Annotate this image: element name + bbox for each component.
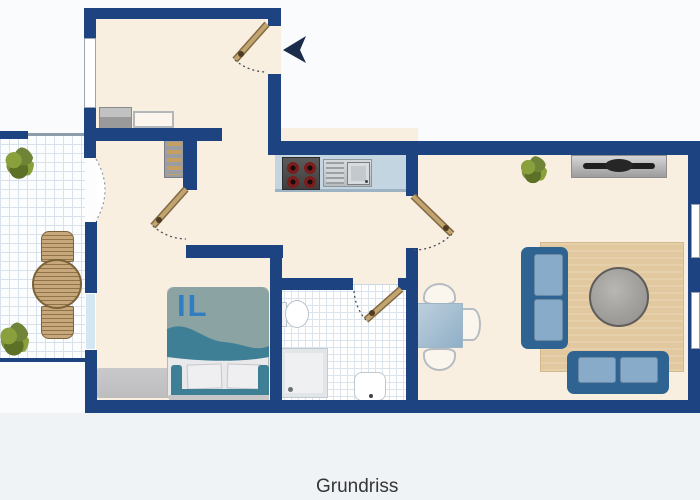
stove-burner — [287, 176, 299, 188]
coffee-table-round — [589, 267, 649, 327]
balcony-bottom-edge — [0, 358, 87, 362]
sofa-cushion — [620, 357, 658, 383]
balcony-chair-south — [41, 306, 74, 339]
hall-dresser — [164, 138, 184, 178]
window-living-north — [691, 204, 700, 258]
bedroom-rug — [97, 368, 170, 398]
window-living-south — [691, 292, 700, 349]
sink-faucet — [365, 180, 368, 183]
wall-segment — [186, 245, 283, 258]
bathroom-sink — [354, 372, 386, 401]
sofa-cushion — [534, 254, 563, 296]
wall-segment — [268, 8, 281, 26]
stove-burner — [287, 162, 299, 174]
bed-pillow — [187, 363, 223, 389]
stove-cooktop — [282, 157, 320, 190]
sink-basin — [347, 162, 370, 185]
tv-stand — [605, 159, 633, 172]
floor-entry-gap — [268, 24, 281, 76]
sofa-two-seater-vertical — [521, 247, 568, 349]
wall-segment — [688, 141, 700, 413]
wall-segment — [84, 8, 281, 19]
shower-tray — [280, 348, 328, 398]
dresser-drawers — [167, 142, 181, 175]
plant-balcony-south — [0, 322, 29, 357]
wall-segment — [270, 278, 353, 290]
wall-segment — [406, 248, 418, 410]
stove-burner — [304, 162, 316, 174]
wall-segment — [183, 128, 197, 190]
dining-table — [417, 303, 463, 348]
window-hall — [84, 38, 96, 108]
sofa-two-seater-horizontal — [567, 351, 669, 394]
sofa-cushion — [534, 299, 563, 341]
hall-bench — [133, 111, 174, 128]
window-bedroom — [85, 293, 96, 350]
floorplan-title: Grundriss — [316, 476, 398, 498]
wall-segment — [406, 150, 418, 196]
wall-segment — [0, 131, 28, 139]
floorplan-canvas: IL Grundriss — [0, 0, 700, 500]
dining-chair-north — [423, 283, 456, 305]
wall-segment — [85, 221, 97, 293]
entrance-arrow-icon — [283, 36, 306, 63]
stove-burner — [304, 176, 316, 188]
wall-segment — [268, 141, 700, 155]
sink-faucet — [369, 394, 373, 398]
plant-living-room — [520, 156, 547, 184]
wall-segment — [270, 252, 282, 410]
wall-segment — [88, 128, 222, 141]
sofa-cushion — [578, 357, 616, 383]
toilet-bowl — [285, 300, 309, 328]
watermark: IL — [177, 288, 209, 324]
hall-wardrobe — [99, 107, 132, 129]
balcony-top-edge — [28, 133, 85, 136]
balcony-chair-north — [41, 231, 74, 262]
plant-balcony-north — [5, 147, 34, 180]
shower-drain — [288, 387, 293, 392]
kitchen-sink-unit — [323, 159, 372, 187]
wall-segment — [85, 400, 700, 413]
balcony-round-table — [32, 259, 82, 309]
sink-drainboard — [326, 162, 344, 184]
